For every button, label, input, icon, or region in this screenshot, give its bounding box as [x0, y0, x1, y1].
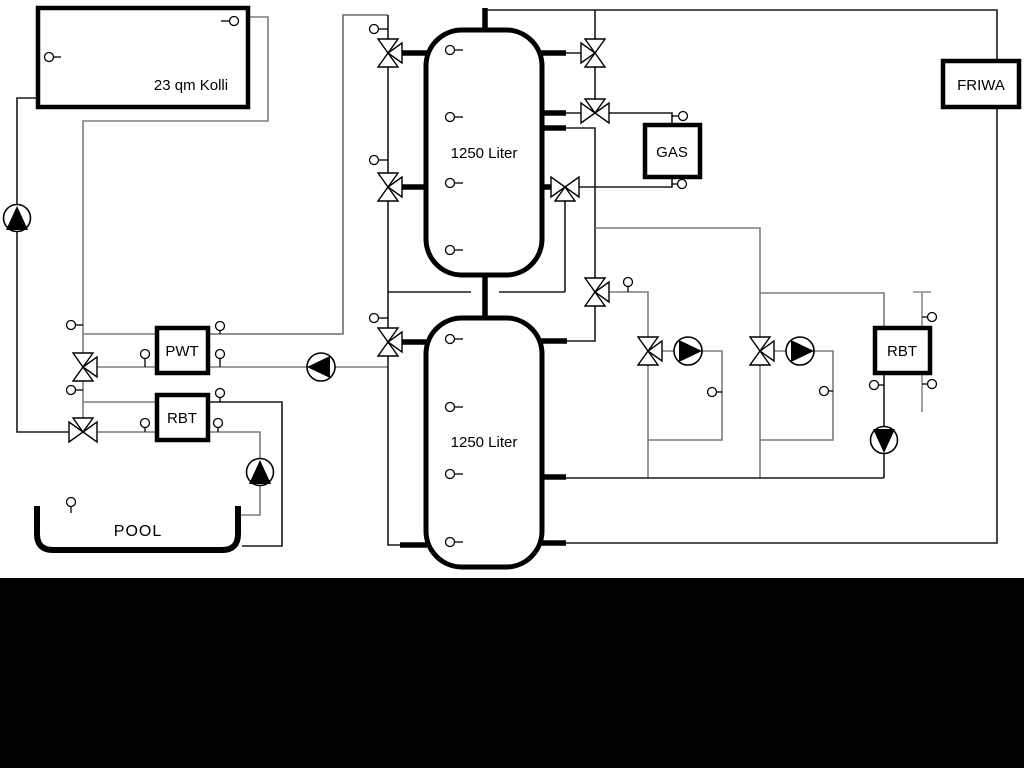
collector-label: 23 qm Kolli: [154, 77, 228, 94]
friwa-label: FRIWA: [957, 77, 1005, 94]
pump-rbt-return: [871, 427, 898, 454]
screenshot-viewer: 23 qm Kolli 1250 Liter 1250 Liter GAS FR…: [0, 0, 1024, 768]
schematic-diagram: 23 qm Kolli 1250 Liter 1250 Liter GAS FR…: [0, 0, 1024, 768]
pump-tank-charge: [307, 353, 335, 381]
pump-solar: [4, 205, 31, 232]
pump-pool: [247, 459, 274, 486]
pump-heating-circuit-1: [674, 337, 702, 365]
pool-label: POOL: [114, 523, 162, 540]
pwt-label: PWT: [165, 343, 198, 360]
tank-upper-label: 1250 Liter: [451, 145, 518, 162]
letterbox-bottom: [0, 578, 1024, 768]
tank-lower-label: 1250 Liter: [451, 434, 518, 451]
gas-label: GAS: [656, 144, 688, 161]
rbt-right-label: RBT: [887, 343, 917, 360]
pump-heating-circuit-2: [786, 337, 814, 365]
rbt-left-label: RBT: [167, 410, 197, 427]
